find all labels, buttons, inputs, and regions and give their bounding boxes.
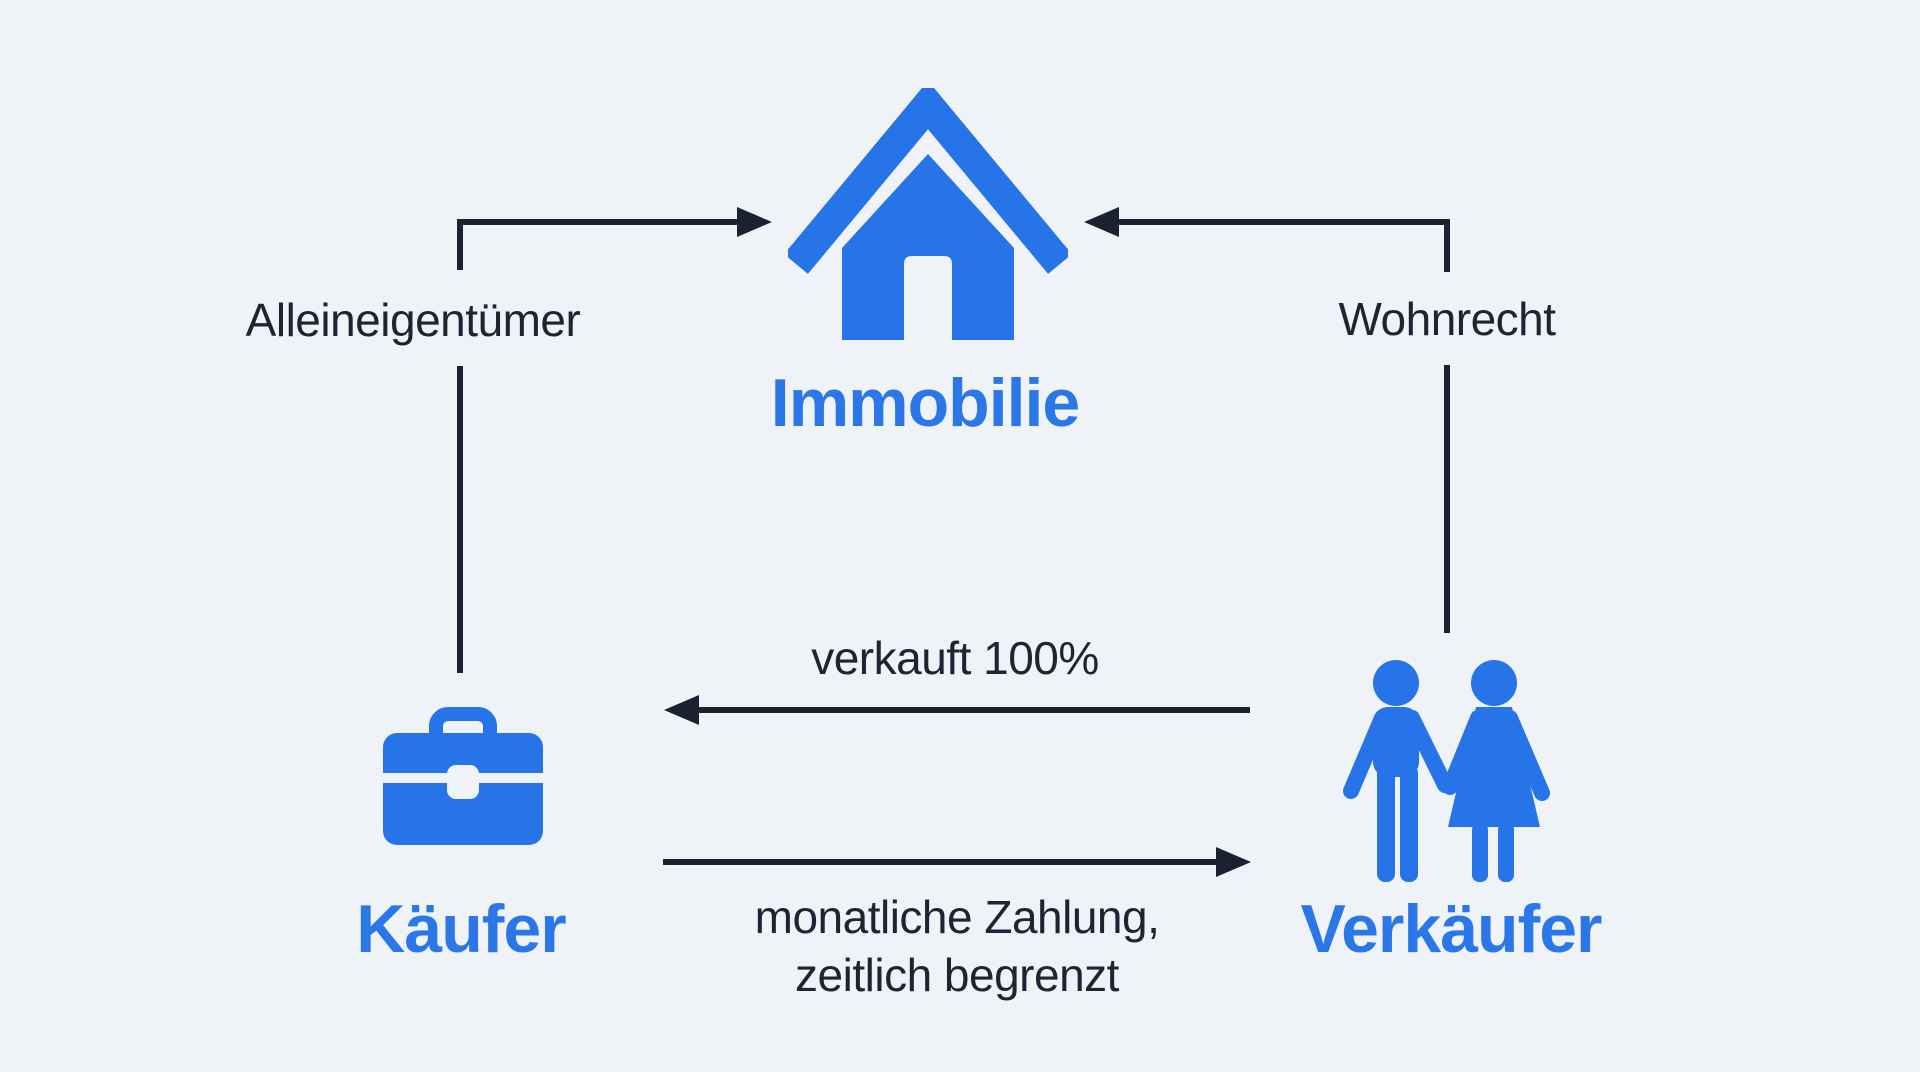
- arrowhead-right-icon: [1216, 847, 1251, 877]
- arrowhead-left-icon: [664, 695, 699, 725]
- arrowhead-right-icon: [737, 207, 772, 237]
- kaeufer-label: Käufer: [356, 890, 565, 968]
- house-icon: [788, 88, 1068, 348]
- edge-monatliche-zahlung-label-line2: zeitlich begrenzt: [795, 948, 1119, 1002]
- immobilie-label: Immobilie: [771, 364, 1079, 442]
- arrow-verkaeufer-to-immobilie-line: [1116, 222, 1447, 272]
- briefcase-icon: [383, 707, 543, 847]
- verkaeufer-label: Verkäufer: [1301, 890, 1602, 968]
- diagram-canvas: Immobilie Käufer Verkäufer Alleineigentü…: [0, 0, 1920, 1072]
- edge-wohnrecht-label: Wohnrecht: [1338, 292, 1555, 346]
- arrowhead-left-icon: [1084, 207, 1119, 237]
- arrow-kaeufer-to-immobilie-line: [460, 222, 740, 270]
- edge-alleineigentuemer-label: Alleineigentümer: [246, 293, 581, 347]
- edge-verkauft-label: verkauft 100%: [811, 631, 1099, 685]
- edge-monatliche-zahlung-label-line1: monatliche Zahlung,: [755, 890, 1160, 944]
- couple-icon: [1338, 655, 1552, 883]
